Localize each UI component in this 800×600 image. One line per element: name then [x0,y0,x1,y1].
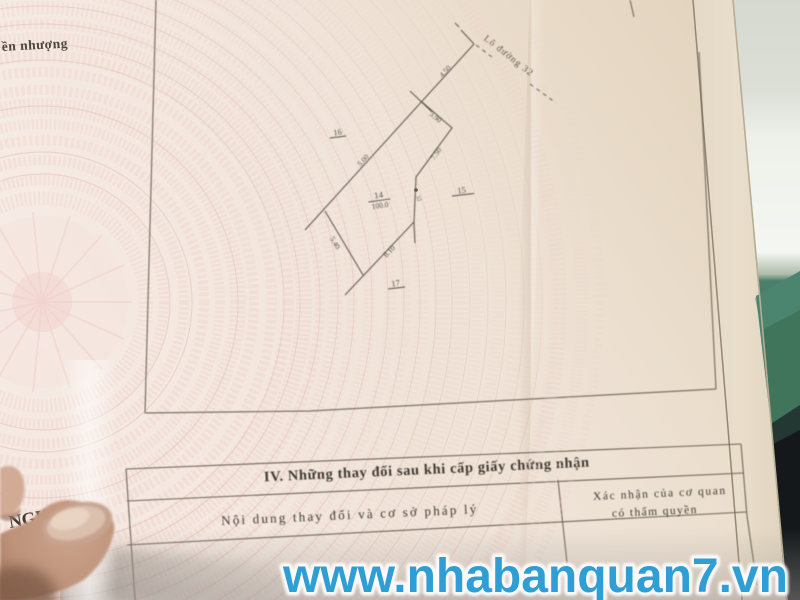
svg-text:17: 17 [391,277,401,288]
svg-text:15: 15 [457,184,467,195]
svg-text:www.nhabanquan7.vn: www.nhabanquan7.vn [282,550,788,600]
svg-text:16: 16 [333,126,343,137]
